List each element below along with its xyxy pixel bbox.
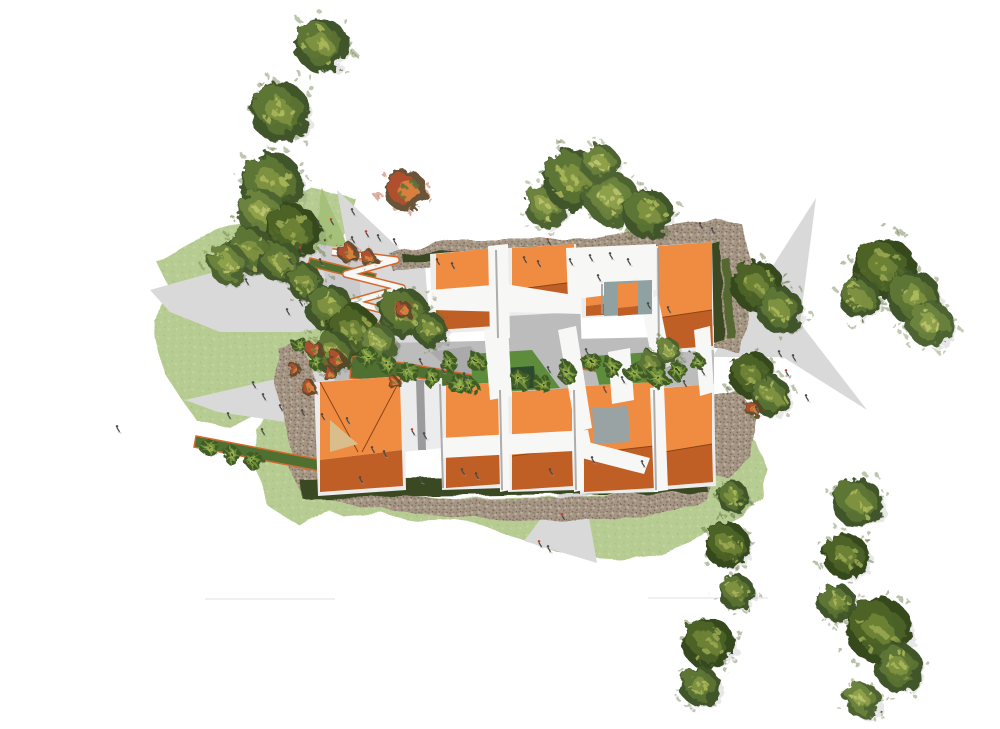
leaf-scatter	[369, 248, 371, 250]
shrub-green-fleck	[401, 307, 403, 309]
leaf-scatter	[881, 288, 885, 292]
leaf-scatter	[296, 70, 301, 75]
leaf-scatter	[527, 226, 531, 230]
leaf-highlight	[648, 363, 651, 366]
leaf-scatter	[891, 323, 896, 328]
leaf-scatter	[241, 154, 246, 159]
shrub-green-fleck	[292, 370, 294, 372]
leaf-highlight	[259, 210, 264, 215]
leaf-highlight	[835, 603, 839, 607]
pedestrian-head	[609, 252, 612, 255]
leaf-scatter	[879, 714, 882, 717]
leaf-highlight	[738, 541, 743, 546]
leaf-scatter	[867, 539, 871, 543]
leaf-scatter	[298, 388, 300, 390]
leaf-scatter	[408, 327, 411, 330]
pedestrian-head	[755, 406, 758, 409]
leaf-highlight	[915, 291, 920, 296]
pedestrian-head	[351, 208, 354, 211]
leaf-scatter	[659, 237, 663, 241]
leaf-scatter	[385, 323, 388, 326]
palm-center	[542, 383, 544, 385]
leaf-highlight	[873, 626, 880, 633]
pedestrian-head	[591, 456, 594, 459]
leaf-highlight	[745, 279, 750, 284]
leaf-scatter	[755, 348, 759, 352]
shrub-green-fleck	[345, 253, 347, 255]
leaf-highlight	[884, 253, 890, 259]
leaf-highlight	[768, 272, 773, 277]
leaf-scatter	[666, 230, 670, 234]
leaf-highlight	[329, 300, 334, 305]
leaf-highlight	[739, 362, 744, 367]
leaf-scatter	[281, 282, 284, 285]
leaf-scatter	[352, 54, 357, 59]
leaf-scatter	[729, 389, 733, 393]
leaf-highlight	[325, 290, 330, 295]
pedestrian-head	[419, 476, 422, 479]
leaf-highlight	[422, 320, 425, 323]
leaf-scatter	[270, 232, 274, 236]
pedestrian-head	[547, 238, 550, 241]
pedestrian-head	[523, 256, 526, 259]
leaf-scatter	[879, 281, 884, 286]
leaf-highlight	[687, 684, 691, 688]
leaf-scatter	[720, 481, 723, 484]
leaf-scatter	[624, 229, 629, 234]
leaf-highlight	[858, 305, 862, 309]
leaf-scatter	[336, 347, 338, 349]
leaf-highlight	[743, 380, 748, 385]
leaf-scatter	[324, 268, 327, 271]
leaf-scatter	[820, 564, 824, 568]
leaf-highlight	[307, 283, 311, 287]
leaf-scatter	[249, 271, 253, 275]
leaf-highlight	[342, 329, 347, 334]
pedestrian-head	[785, 369, 788, 372]
leaf-highlight	[274, 262, 278, 266]
pedestrian-head	[245, 278, 248, 281]
leaf-scatter	[336, 378, 338, 380]
leaf-highlight	[319, 320, 324, 325]
leaf-scatter	[905, 235, 910, 240]
leaf-highlight	[695, 655, 700, 660]
pedestrian-head	[475, 472, 478, 475]
leaf-highlight	[371, 342, 375, 346]
leaf-scatter	[882, 307, 887, 312]
leaf-highlight	[590, 163, 594, 167]
pedestrian-head	[383, 450, 386, 453]
leaf-scatter	[847, 322, 851, 326]
leaf-scatter	[299, 161, 304, 166]
leaf-scatter	[266, 143, 271, 148]
leaf-highlight	[897, 650, 902, 655]
leaf-scatter	[362, 267, 364, 269]
leaf-scatter	[754, 377, 758, 381]
leaf-highlight	[735, 595, 739, 599]
leaf-scatter	[838, 706, 841, 709]
leaf-scatter	[824, 489, 828, 493]
leaf-highlight	[216, 253, 220, 257]
pedestrian-head	[299, 299, 302, 302]
palm-center	[469, 385, 471, 387]
leaf-highlight	[840, 556, 845, 561]
leaf-scatter	[782, 274, 786, 278]
leaf-scatter	[667, 365, 670, 368]
leaf-highlight	[430, 322, 433, 325]
leaf-scatter	[338, 243, 340, 245]
leaf-scatter	[704, 529, 708, 533]
leaf-highlight	[850, 695, 854, 699]
leaf-scatter	[630, 173, 635, 178]
leaf-scatter	[272, 185, 276, 189]
pedestrian-head	[538, 540, 541, 543]
leaf-highlight	[290, 109, 296, 115]
leaf-scatter	[225, 284, 229, 288]
leaf-highlight	[371, 333, 375, 337]
leaf-scatter	[326, 366, 328, 368]
leaf-scatter	[699, 661, 703, 665]
leaf-highlight	[847, 602, 851, 606]
pedestrian-head	[683, 380, 686, 383]
leaf-scatter	[391, 327, 394, 330]
shrub-green-fleck	[368, 255, 370, 257]
leaf-scatter	[321, 371, 323, 373]
leaf-scatter	[310, 332, 314, 336]
leaf-scatter	[348, 41, 353, 46]
leaf-highlight	[709, 639, 714, 644]
leaf-scatter	[309, 376, 311, 378]
leaf-scatter	[539, 169, 544, 174]
pedestrian-head	[667, 306, 670, 309]
leaf-scatter	[641, 183, 645, 187]
leaf-scatter	[303, 172, 308, 177]
pedestrian-head	[547, 366, 550, 369]
leaf-scatter	[821, 618, 824, 621]
shrub-green-fleck	[403, 310, 405, 312]
shrub-green-fleck	[294, 370, 296, 372]
shrub-green-fleck	[337, 359, 339, 361]
leaf-highlight	[699, 689, 703, 693]
leaf-highlight	[936, 327, 941, 332]
leaf-scatter	[905, 599, 910, 604]
leaf-scatter	[732, 658, 736, 662]
shrub-green-fleck	[749, 409, 751, 411]
leaf-highlight	[862, 506, 867, 511]
palm-center	[696, 361, 698, 363]
pedestrian-head	[561, 513, 564, 516]
leaf-scatter	[375, 295, 379, 299]
leaf-highlight	[300, 43, 305, 48]
leaf-scatter	[832, 286, 836, 290]
leaf-scatter	[305, 91, 310, 96]
leaf-scatter	[830, 625, 833, 628]
leaf-scatter	[847, 682, 850, 685]
leaf-scatter	[422, 309, 425, 312]
leaf-scatter	[355, 295, 359, 299]
leaf-scatter	[309, 340, 311, 342]
leaf-scatter	[710, 664, 714, 668]
leaf-scatter	[837, 647, 842, 652]
shrub-green-fleck	[296, 367, 298, 369]
leaf-scatter	[743, 414, 745, 416]
palm-center	[519, 379, 521, 381]
leaf-highlight	[560, 175, 566, 181]
leaf-highlight	[903, 652, 908, 657]
leaf-scatter	[232, 217, 236, 221]
leaf-scatter	[859, 592, 862, 595]
leaf-scatter	[826, 536, 830, 540]
shrub-green-fleck	[413, 181, 418, 186]
shrub-green-fleck	[394, 382, 395, 383]
leaf-scatter	[841, 612, 846, 617]
leaf-highlight	[351, 328, 356, 333]
leaf-scatter	[412, 304, 414, 306]
pedestrian-head	[419, 358, 422, 361]
leaf-scatter	[558, 147, 563, 152]
shrub-green-fleck	[366, 259, 368, 261]
roof-light-face	[658, 242, 712, 318]
leaf-highlight	[728, 534, 733, 539]
pedestrian-head	[701, 368, 704, 371]
pedestrian-head	[451, 262, 454, 265]
leaf-highlight	[932, 320, 937, 325]
shrub-green-fleck	[397, 382, 398, 383]
palm-center	[367, 356, 369, 358]
pedestrian-head	[411, 428, 414, 431]
shrub-green-fleck	[333, 377, 335, 379]
leaf-scatter	[679, 670, 683, 674]
leaf-scatter	[335, 368, 337, 370]
leaf-highlight	[546, 216, 550, 220]
leaf-highlight	[733, 592, 737, 596]
pedestrian-head	[561, 372, 564, 375]
leaf-highlight	[726, 541, 731, 546]
leaf-scatter	[303, 139, 308, 144]
leaf-scatter	[958, 327, 962, 331]
leaf-scatter	[275, 230, 279, 234]
leaf-highlight	[671, 344, 674, 347]
leaf-scatter	[293, 237, 297, 241]
leaf-scatter	[327, 232, 332, 237]
leaf-highlight	[652, 200, 657, 205]
pedestrian-head	[463, 372, 466, 375]
leaf-highlight	[546, 205, 550, 209]
leaf-scatter	[529, 183, 533, 187]
leaf-scatter	[280, 187, 284, 191]
leaf-highlight	[718, 649, 723, 654]
leaf-scatter	[426, 182, 430, 186]
leaf-scatter	[675, 214, 679, 218]
leaf-scatter	[734, 515, 737, 518]
leaf-scatter	[747, 608, 750, 611]
leaf-scatter	[375, 265, 377, 267]
leaf-scatter	[319, 250, 324, 255]
leaf-scatter	[427, 197, 431, 201]
leaf-scatter	[331, 275, 335, 279]
leaf-highlight	[614, 190, 619, 195]
leaf-highlight	[775, 310, 780, 315]
leaf-scatter	[338, 372, 342, 376]
leaf-scatter	[225, 236, 229, 240]
shrub-green-fleck	[397, 308, 399, 310]
leaf-highlight	[236, 266, 240, 270]
leaf-scatter	[286, 363, 288, 365]
leaf-scatter	[653, 356, 656, 359]
pedestrian-head	[317, 220, 320, 223]
pedestrian-head	[377, 234, 380, 237]
shrub-green-fleck	[752, 406, 754, 408]
leaf-highlight	[594, 161, 598, 165]
leaf-scatter	[723, 514, 726, 517]
pedestrian-head	[621, 376, 624, 379]
leaf-highlight	[755, 284, 760, 289]
leaf-scatter	[744, 610, 747, 613]
leaf-highlight	[769, 308, 774, 313]
leaf-scatter	[816, 541, 820, 545]
leaf-scatter	[847, 256, 852, 261]
leaf-scatter	[585, 182, 588, 185]
leaf-scatter	[840, 260, 845, 265]
leaf-highlight	[832, 592, 836, 596]
leaf-highlight	[253, 206, 258, 211]
leaf-highlight	[779, 316, 784, 321]
leaf-scatter	[864, 270, 868, 274]
shrub-green-fleck	[316, 349, 318, 351]
leaf-scatter	[291, 361, 293, 363]
shrub-green-fleck	[312, 347, 314, 349]
leaf-highlight	[566, 185, 572, 191]
leaf-scatter	[882, 223, 887, 228]
leaf-scatter	[860, 268, 864, 272]
shrub-green-fleck	[346, 248, 348, 250]
leaf-scatter	[734, 628, 738, 632]
leaf-scatter	[301, 368, 303, 370]
leaf-highlight	[603, 198, 608, 203]
leaf-scatter	[200, 262, 204, 266]
leaf-scatter	[725, 516, 729, 520]
leaf-scatter	[343, 69, 348, 74]
leaf-highlight	[771, 278, 776, 283]
leaf-scatter	[886, 591, 891, 596]
leaf-scatter	[676, 227, 680, 231]
leaf-highlight	[228, 265, 232, 269]
leaf-scatter	[690, 706, 694, 710]
leaf-highlight	[851, 305, 855, 309]
pedestrian-head	[569, 258, 572, 261]
shrub-green-fleck	[400, 193, 405, 198]
leaf-highlight	[364, 320, 369, 325]
leaf-scatter	[855, 592, 858, 595]
shrub-green-fleck	[330, 376, 332, 378]
leaf-scatter	[898, 330, 902, 334]
leaf-scatter	[761, 255, 765, 259]
leaf-highlight	[866, 645, 873, 652]
leaf-scatter	[592, 136, 595, 139]
leaf-scatter	[255, 222, 259, 226]
pedestrian-head	[351, 236, 354, 239]
pedestrian-head	[641, 460, 644, 463]
leaf-scatter	[316, 276, 320, 280]
leaf-scatter	[407, 210, 411, 214]
leaf-highlight	[224, 261, 228, 265]
leaf-highlight	[922, 307, 927, 312]
leaf-scatter	[421, 349, 424, 352]
leaf-scatter	[883, 311, 887, 315]
leaf-scatter	[864, 473, 868, 477]
leaf-highlight	[705, 636, 710, 641]
palm-center	[231, 454, 233, 456]
palm-center	[611, 367, 613, 369]
leaf-scatter	[307, 335, 311, 339]
leaf-scatter	[355, 260, 357, 262]
leaf-scatter	[623, 161, 626, 164]
leaf-highlight	[848, 286, 852, 290]
leaf-highlight	[734, 502, 737, 505]
leaf-highlight	[783, 396, 787, 400]
shrub-green-fleck	[346, 258, 348, 260]
leaf-scatter	[205, 253, 209, 257]
leaf-highlight	[833, 599, 837, 603]
pedestrian-head	[537, 260, 540, 263]
leaf-scatter	[325, 279, 328, 282]
leaf-scatter	[900, 324, 904, 328]
leaf-highlight	[277, 222, 283, 228]
leaf-scatter	[906, 342, 910, 346]
leaf-highlight	[925, 323, 930, 328]
leaf-scatter	[352, 333, 355, 336]
pedestrian-head	[227, 412, 230, 415]
leaf-highlight	[705, 682, 709, 686]
leaf-scatter	[326, 360, 328, 362]
leaf-scatter	[628, 237, 632, 241]
leaf-highlight	[750, 369, 755, 374]
leaf-scatter	[780, 337, 784, 341]
leaf-highlight	[351, 339, 356, 344]
leaf-scatter	[397, 388, 399, 390]
leaf-highlight	[646, 367, 649, 370]
palm-center	[457, 383, 459, 385]
pedestrian-head	[365, 230, 368, 233]
leaf-scatter	[750, 540, 754, 544]
leaf-highlight	[325, 59, 330, 64]
leaf-highlight	[901, 287, 906, 292]
leaf-highlight	[856, 561, 861, 566]
leaf-highlight	[739, 585, 743, 589]
leaf-scatter	[849, 581, 853, 585]
leaf-scatter	[579, 169, 582, 172]
leaf-highlight	[851, 546, 856, 551]
leaf-scatter	[705, 562, 709, 566]
leaf-highlight	[601, 153, 605, 157]
leaf-scatter	[883, 489, 887, 493]
leaf-scatter	[783, 371, 787, 375]
leaf-highlight	[770, 317, 775, 322]
leaf-scatter	[809, 311, 813, 315]
pedestrian-head	[627, 258, 630, 261]
leaf-highlight	[885, 662, 890, 667]
leaf-scatter	[855, 273, 859, 277]
palm-center	[565, 371, 567, 373]
leaf-highlight	[419, 329, 422, 332]
leaf-scatter	[358, 258, 360, 260]
leaf-scatter	[556, 140, 561, 145]
leaf-scatter	[722, 295, 726, 299]
leaf-scatter	[307, 74, 312, 79]
shrub-green-fleck	[404, 186, 409, 191]
pedestrian-head	[805, 394, 808, 397]
leaf-highlight	[303, 281, 307, 285]
